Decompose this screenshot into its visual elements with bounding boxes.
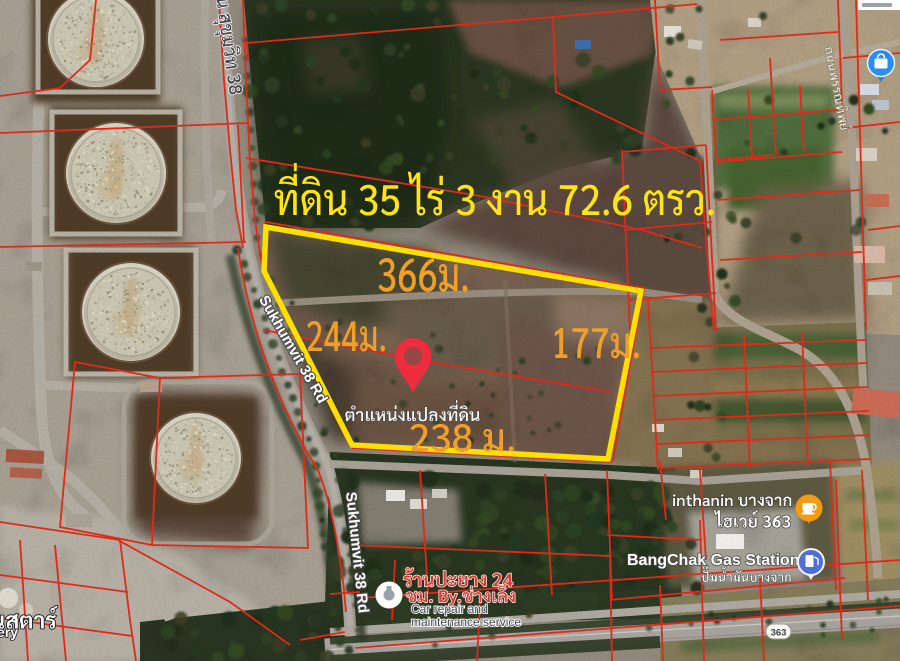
svg-text:Car repair and: Car repair and [411, 602, 488, 616]
svg-text:ery: ery [0, 624, 18, 640]
svg-text:BangChak Gas Station: BangChak Gas Station [627, 552, 799, 569]
svg-text:maintenance service: maintenance service [411, 615, 521, 629]
svg-text:363: 363 [771, 628, 787, 639]
